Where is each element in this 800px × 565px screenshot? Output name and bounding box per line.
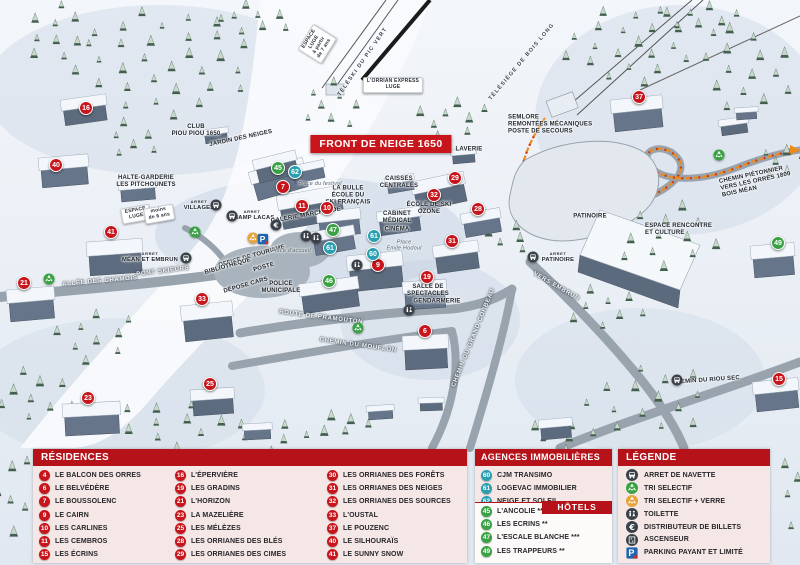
legend-key-item: ASCENSEUR xyxy=(626,533,770,546)
map-label: CLUB PIOU PIOU 1650 xyxy=(172,124,221,138)
residence-item: 10LES CARLINES xyxy=(39,522,175,535)
map-label: ARRETPATINOIRE xyxy=(542,252,575,264)
svg-text:P: P xyxy=(628,548,634,558)
map-label: ÉCOLE DE SKI OZONE xyxy=(407,202,452,216)
item-label: ARRET DE NAVETTE xyxy=(644,472,715,479)
item-label: LES MÉLÈZES xyxy=(191,525,241,532)
number-badge: 4 xyxy=(39,470,50,481)
map-marker-60[interactable]: 60 xyxy=(366,247,380,261)
number-badge: 31 xyxy=(327,483,338,494)
item-label: LA MAZELIÈRE xyxy=(191,512,244,519)
item-label: LE BALCON DES ORRES xyxy=(55,472,141,479)
item-label: LES ÉCRINS xyxy=(55,551,98,558)
item-label: ASCENSEUR xyxy=(644,536,689,543)
residence-item: 40LE SILHOURAÏS xyxy=(327,535,467,548)
legend-key-item: €DISTRIBUTEUR DE BILLETS xyxy=(626,521,770,534)
residence-item: 29LES ORRIANES DES CIMES xyxy=(175,548,327,561)
item-label: LE BOUSSOLENC xyxy=(55,498,117,505)
number-badge: 47 xyxy=(481,532,492,543)
resort-map: 1640412133232571110293228313791961562616… xyxy=(0,0,800,565)
map-marker-28[interactable]: 28 xyxy=(471,202,485,216)
item-label: PARKING PAYANT ET LIMITÉ xyxy=(644,549,743,556)
toilet-icon xyxy=(626,508,638,520)
number-badge: 32 xyxy=(327,496,338,507)
item-label: LES GRADINS xyxy=(191,485,240,492)
number-badge: 21 xyxy=(175,496,186,507)
map-marker-32[interactable]: 32 xyxy=(427,188,441,202)
parking-icon: P xyxy=(258,234,269,245)
number-badge: 23 xyxy=(175,510,186,521)
recycle-green-icon xyxy=(353,323,364,334)
euro-icon: € xyxy=(271,220,282,231)
legend-key-item: TRI SELECTIF xyxy=(626,482,770,495)
residence-item: 28LES ORRIANES DES BLÉS xyxy=(175,535,327,548)
item-label: DISTRIBUTEUR DE BILLETS xyxy=(644,524,741,531)
number-badge: 29 xyxy=(175,549,186,560)
recycle-yellow-icon xyxy=(626,495,638,507)
item-label: LES CEMBROS xyxy=(55,538,107,545)
map-label: Place Émile Hodoul xyxy=(386,240,421,253)
map-marker-7[interactable]: 7 xyxy=(276,180,290,194)
item-label: LES ORRIANES DES BLÉS xyxy=(191,538,283,545)
number-badge: 45 xyxy=(481,506,492,517)
legend-hotels-title: HÔTELS xyxy=(542,501,612,514)
map-label: POSTE xyxy=(253,262,275,275)
item-label: TRI SELECTIF + VERRE xyxy=(644,498,725,505)
map-label: CHEMIN PIÉTONNIER VERS LES ORRES 1800 BO… xyxy=(719,164,793,200)
map-marker-49[interactable]: 49 xyxy=(771,236,785,250)
number-badge: 28 xyxy=(175,536,186,547)
map-marker-61[interactable]: 61 xyxy=(323,241,337,255)
map-label: ESPACE RENCONTRE ET CULTURE xyxy=(645,223,712,237)
map-label: PONT SKIEURS xyxy=(136,265,190,279)
number-badge: 9 xyxy=(39,510,50,521)
item-label: LES ORRIANES DES CIMES xyxy=(191,551,286,558)
residence-item: 7LE BOUSSOLENC xyxy=(39,495,175,508)
svg-text:P: P xyxy=(260,235,266,244)
item-label: L'ÉPERVIÈRE xyxy=(191,472,238,479)
map-marker-46[interactable]: 46 xyxy=(322,274,336,288)
elevator-icon xyxy=(626,534,638,546)
map-label: Place d'accueil xyxy=(271,248,311,254)
map-label: CHEMIN DU MOUFLON xyxy=(319,337,397,355)
map-marker-31[interactable]: 31 xyxy=(445,234,459,248)
residence-item: 21L'HORIZON xyxy=(175,495,327,508)
item-label: TRI SELECTIF xyxy=(644,485,692,492)
map-marker-10[interactable]: 10 xyxy=(320,201,334,215)
item-label: LE SUNNY SNOW xyxy=(343,551,403,558)
number-badge: 16 xyxy=(175,470,186,481)
item-label: LE POUZENC xyxy=(343,525,389,532)
number-badge: 15 xyxy=(39,549,50,560)
front-de-neige-banner: FRONT DE NEIGE 1650 xyxy=(310,135,451,153)
bus-icon xyxy=(672,375,683,386)
map-marker-29[interactable]: 29 xyxy=(448,171,462,185)
item-label: LES ORRIANES DES FORÊTS xyxy=(343,472,444,479)
toilet-icon xyxy=(404,305,415,316)
recycle-green-icon xyxy=(190,227,201,238)
number-badge: 19 xyxy=(175,483,186,494)
number-badge: 10 xyxy=(39,523,50,534)
map-marker-45[interactable]: 45 xyxy=(271,161,285,175)
number-badge: 60 xyxy=(481,470,492,481)
item-label: LES ORRIANES DES SOURCES xyxy=(343,498,451,505)
recycle-green-icon xyxy=(714,150,725,161)
bus-icon xyxy=(181,253,192,264)
item-label: L'ANCOLIE ** xyxy=(497,508,543,515)
residence-item: 4LE BALCON DES ORRES xyxy=(39,469,175,482)
legend-residences-title: RÉSIDENCES xyxy=(33,449,467,466)
map-marker-47[interactable]: 47 xyxy=(326,223,340,237)
recycle-green-icon xyxy=(626,482,638,494)
map-marker-16[interactable]: 16 xyxy=(79,101,93,115)
hotel-item: 49LES TRAPPEURS ** xyxy=(481,545,580,558)
map-label: SALLE DE SPECTACLES xyxy=(407,284,449,298)
residence-item: 31LES ORRIANES DES NEIGES xyxy=(327,482,467,495)
item-label: TOILETTE xyxy=(644,511,679,518)
number-badge: 11 xyxy=(39,536,50,547)
residence-item: 32LES ORRIANES DES SOURCES xyxy=(327,495,467,508)
item-label: LOGEVAC IMMOBILIER xyxy=(497,485,577,492)
bus-icon xyxy=(227,211,238,222)
legend-key-title: LÉGENDE xyxy=(618,449,770,466)
map-label: ALLÉE DES CHAMOIS xyxy=(62,275,138,289)
item-label: LES ECRINS ** xyxy=(497,521,548,528)
svg-text:€: € xyxy=(272,221,278,230)
map-label: SEMLORE REMONTÉES MÉCANIQUES POSTE DE SE… xyxy=(508,114,592,135)
map-label: HALTE-GARDERIE LES PITCHOUNETS xyxy=(116,175,175,189)
number-badge: 49 xyxy=(481,546,492,557)
residence-item: 16L'ÉPERVIÈRE xyxy=(175,469,327,482)
map-marker-41[interactable]: 41 xyxy=(104,225,118,239)
legend-key-item: ARRET DE NAVETTE xyxy=(626,469,770,482)
map-label: CAISSES CENTRALES xyxy=(380,176,418,190)
item-label: LE SILHOURAÏS xyxy=(343,538,398,545)
number-badge: 41 xyxy=(327,549,338,560)
residence-item: 11LES CEMBROS xyxy=(39,535,175,548)
map-label: PATINOIRE xyxy=(573,213,607,220)
map-label: LAVERIE xyxy=(456,146,483,153)
number-badge: 6 xyxy=(39,483,50,494)
residence-item: 6LE BELVÉDÈRE xyxy=(39,482,175,495)
hotel-item: 46LES ECRINS ** xyxy=(481,518,580,531)
residence-item: 33L'OUSTAL xyxy=(327,509,467,522)
legend-key-item: TOILETTE xyxy=(626,508,770,521)
euro-icon: € xyxy=(626,521,638,533)
map-label: ROUTE DE PRAMOUTON xyxy=(279,309,364,326)
item-label: CJM TRANSIMO xyxy=(497,472,552,479)
toilet-icon xyxy=(311,233,322,244)
number-badge: 30 xyxy=(327,470,338,481)
legend-residences-panel: RÉSIDENCES 4LE BALCON DES ORRES6LE BELVÉ… xyxy=(33,449,467,563)
map-marker-6[interactable]: 6 xyxy=(418,324,432,338)
number-badge: 7 xyxy=(39,496,50,507)
residence-item: 25LES MÉLÈZES xyxy=(175,522,327,535)
map-marker-40[interactable]: 40 xyxy=(49,158,63,172)
legend-agencies-title: AGENCES IMMOBILIÈRES xyxy=(475,449,612,466)
agency-item: 61LOGEVAC IMMOBILIER xyxy=(481,482,612,495)
recycle-green-icon xyxy=(44,274,55,285)
bus-icon xyxy=(211,200,222,211)
map-marker-21[interactable]: 21 xyxy=(17,276,31,290)
legend-key-item: TRI SELECTIF + VERRE xyxy=(626,495,770,508)
map-label: CABINET MÉDICAL xyxy=(383,211,412,225)
map-marker-23[interactable]: 23 xyxy=(81,391,95,405)
legend-key-item: PPARKING PAYANT ET LIMITÉ xyxy=(626,546,770,559)
toilet-icon xyxy=(352,260,363,271)
residence-item: 37LE POUZENC xyxy=(327,522,467,535)
legend-key-list: ARRET DE NAVETTETRI SELECTIFTRI SELECTIF… xyxy=(618,466,770,559)
map-label: GENDARMERIE xyxy=(413,298,460,305)
residence-item: 30LES ORRIANES DES FORÊTS xyxy=(327,469,467,482)
residence-item: 23LA MAZELIÈRE xyxy=(175,509,327,522)
map-marker-25[interactable]: 25 xyxy=(203,377,217,391)
map-label: VERS EMBRUN xyxy=(532,271,581,303)
item-label: LE CAIRN xyxy=(55,512,89,519)
item-label: L'HORIZON xyxy=(191,498,230,505)
map-label: ARRETMÉAN ET EMBRUN xyxy=(122,252,178,264)
map-label: POLICE MUNICIPALE xyxy=(262,281,301,295)
residence-item: 19LES GRADINS xyxy=(175,482,327,495)
map-marker-61[interactable]: 61 xyxy=(367,229,381,243)
item-label: LE BELVÉDÈRE xyxy=(55,485,109,492)
number-badge: 37 xyxy=(327,523,338,534)
map-label: L'ORRIAN EXPRESS LUGE xyxy=(363,77,423,93)
item-label: LES ORRIANES DES NEIGES xyxy=(343,485,443,492)
map-marker-62[interactable]: 62 xyxy=(288,165,302,179)
bus-icon xyxy=(626,469,638,481)
bus-icon xyxy=(528,252,539,263)
item-label: LES CARLINES xyxy=(55,525,108,532)
map-marker-19[interactable]: 19 xyxy=(420,270,434,284)
number-badge: 40 xyxy=(327,536,338,547)
number-badge: 25 xyxy=(175,523,186,534)
residence-item: 15LES ÉCRINS xyxy=(39,548,175,561)
hotel-item: 47L'ESCALE BLANCHE *** xyxy=(481,531,580,544)
number-badge: 61 xyxy=(481,483,492,494)
map-marker-11[interactable]: 11 xyxy=(295,199,309,213)
svg-text:€: € xyxy=(628,523,635,532)
parking-icon: P xyxy=(626,547,638,559)
number-badge: 33 xyxy=(327,510,338,521)
map-marker-15[interactable]: 15 xyxy=(772,372,786,386)
map-label: ESPACE LUGE à partir de 7 ans xyxy=(297,24,336,64)
number-badge: 46 xyxy=(481,519,492,530)
residence-item: 41LE SUNNY SNOW xyxy=(327,548,467,561)
item-label: L'OUSTAL xyxy=(343,512,378,519)
residences-list: 4LE BALCON DES ORRES6LE BELVÉDÈRE7LE BOU… xyxy=(33,466,467,561)
map-marker-33[interactable]: 33 xyxy=(195,292,209,306)
residence-item: 9LE CAIRN xyxy=(39,509,175,522)
legend-agencies-panel: AGENCES IMMOBILIÈRES 60CJM TRANSIMO61LOG… xyxy=(475,449,612,563)
map-label: TÉLÉSIÈGE DE BOIS LONG xyxy=(488,22,556,102)
legend-key-panel: LÉGENDE ARRET DE NAVETTETRI SELECTIFTRI … xyxy=(618,449,770,563)
item-label: LES TRAPPEURS ** xyxy=(497,548,565,555)
item-label: L'ESCALE BLANCHE *** xyxy=(497,534,580,541)
map-label: CINÉMA xyxy=(385,226,410,233)
agency-item: 60CJM TRANSIMO xyxy=(481,469,612,482)
map-marker-37[interactable]: 37 xyxy=(632,90,646,104)
